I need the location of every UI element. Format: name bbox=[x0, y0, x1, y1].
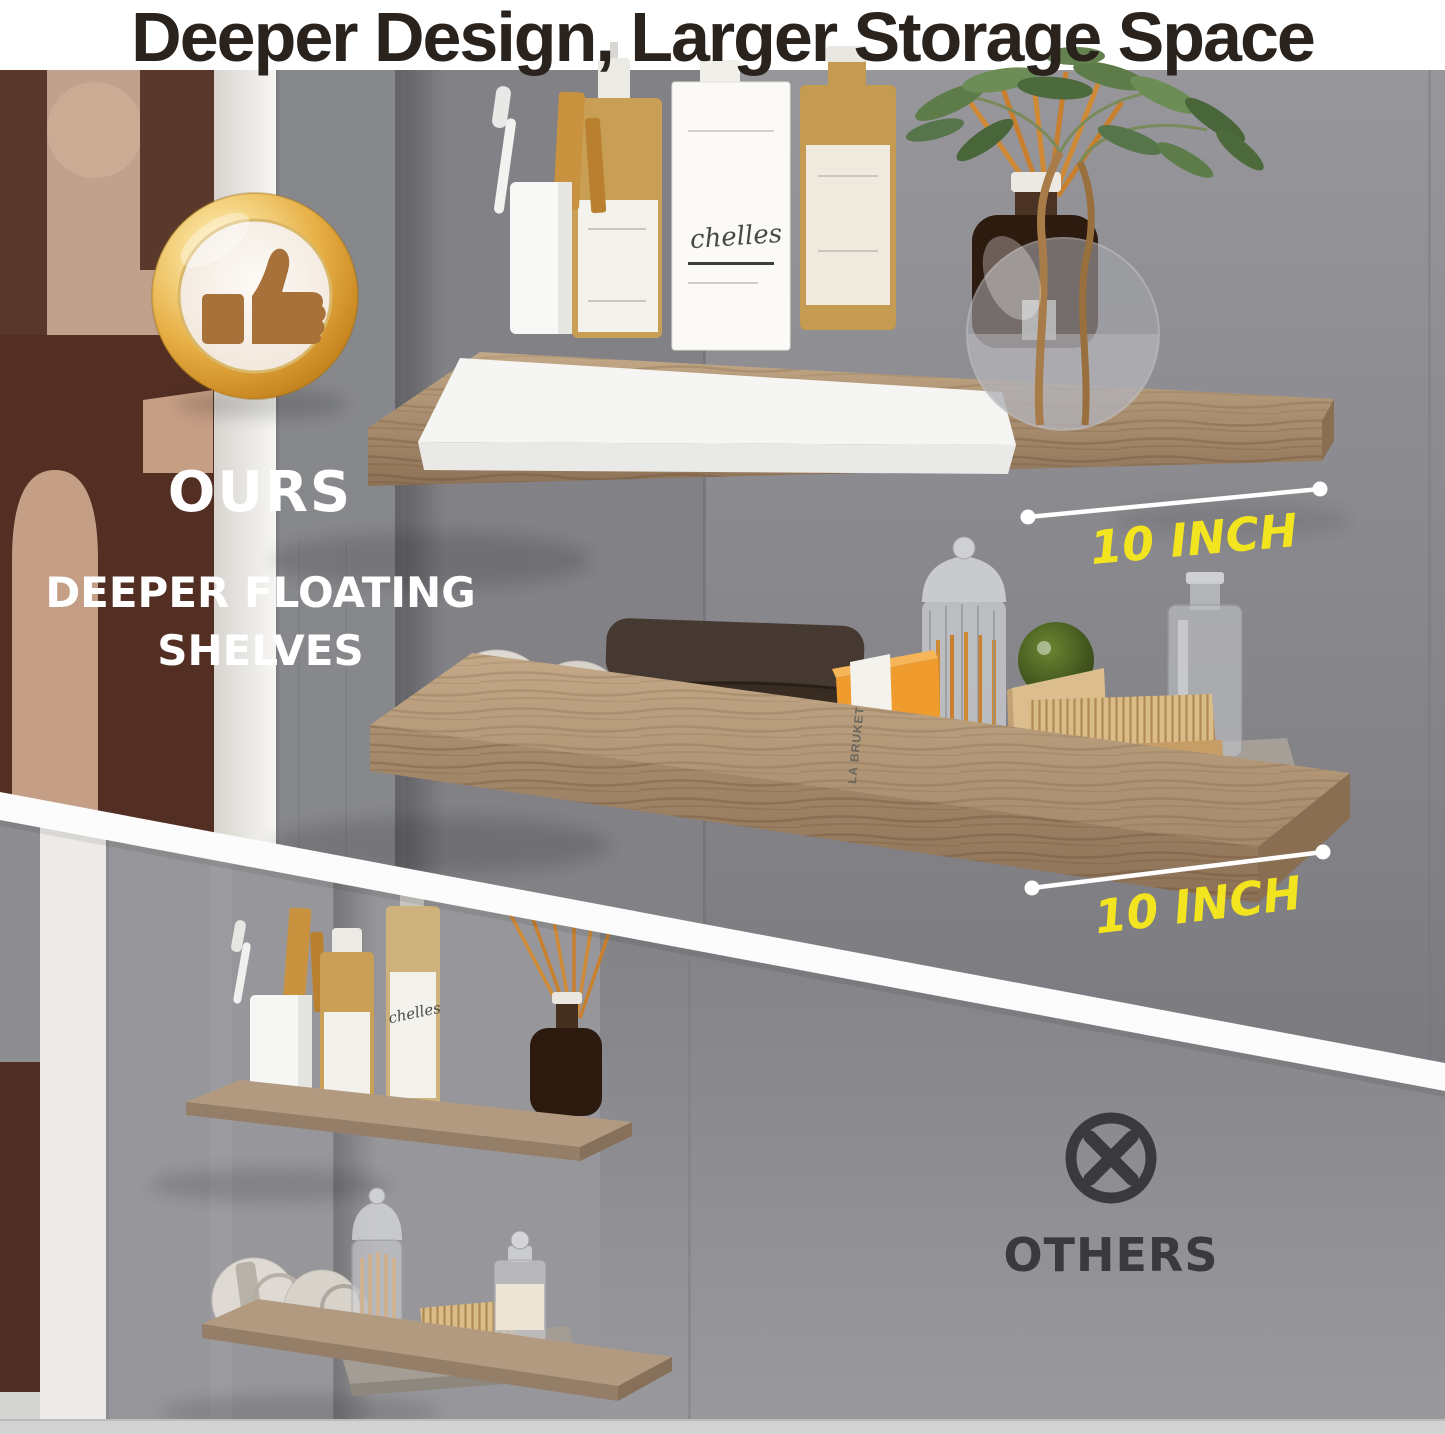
others-label: OTHERS bbox=[999, 1228, 1223, 1282]
ours-label: OURS bbox=[60, 460, 460, 525]
ours-subtitle: DEEPER FLOATING SHELVES bbox=[33, 564, 488, 680]
white-cosmetic-box bbox=[672, 60, 790, 350]
poster-edge-bottom bbox=[0, 1062, 40, 1392]
poster-frame-bottom bbox=[40, 812, 106, 1434]
headline: Deeper Design, Larger Storage Space bbox=[0, 0, 1445, 74]
amber-bottle-rear bbox=[800, 46, 896, 330]
photo-illustration bbox=[0, 0, 1445, 1434]
bottle-script-text: chelles bbox=[689, 219, 783, 255]
baseboard bbox=[0, 1420, 1445, 1434]
product-promo-image: Deeper Design, Larger Storage Space OURS… bbox=[0, 0, 1445, 1434]
